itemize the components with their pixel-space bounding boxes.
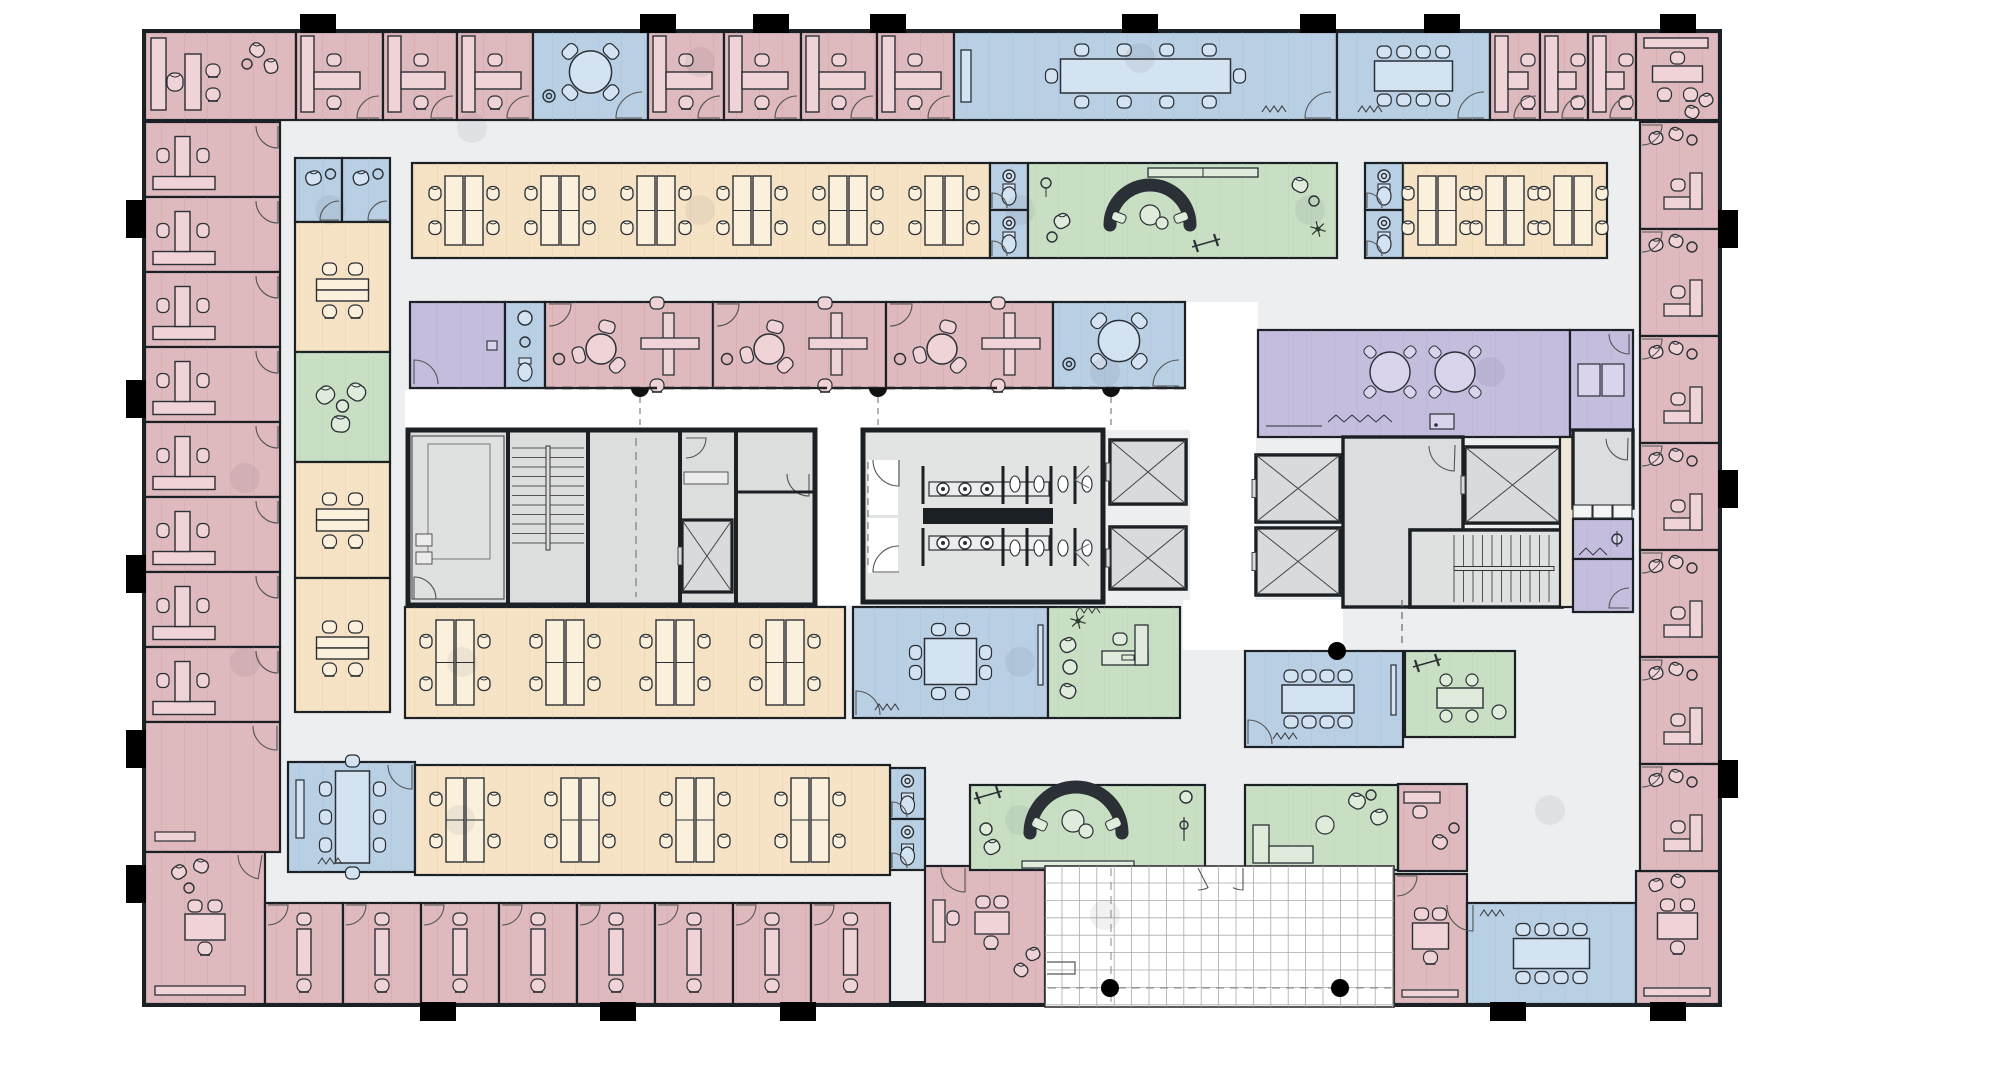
- restrooms: [863, 430, 1103, 602]
- office-s-7: [733, 903, 811, 1004]
- elevator-3: [1252, 455, 1340, 522]
- office-w-8: [145, 647, 280, 722]
- office-n-9: [1540, 32, 1588, 120]
- office-e-6: [1640, 657, 1719, 764]
- dining-room: [1405, 651, 1515, 737]
- elevator-2: [1106, 527, 1186, 589]
- office-s-5: [577, 903, 655, 1004]
- wc-n-3: [1365, 163, 1403, 210]
- lounge-se: [1245, 785, 1398, 870]
- open-office-s: [415, 765, 890, 875]
- office-w-4: [145, 347, 280, 422]
- office-n-1: [296, 32, 383, 120]
- core-west: [408, 430, 815, 605]
- office-n-2: [383, 32, 457, 120]
- office-w-7: [145, 572, 280, 647]
- corner-office-se: [1636, 871, 1719, 1004]
- floor-plan: [0, 0, 2002, 1069]
- collab-cafe: [1258, 330, 1570, 437]
- office-w-9: [145, 722, 280, 852]
- office-w-2: [145, 197, 280, 272]
- store-e-2: [1573, 559, 1633, 612]
- phone-booth-2: [342, 158, 390, 222]
- wc-n-4: [1365, 210, 1403, 258]
- meeting-room-sw: [288, 755, 415, 879]
- open-office-ne: [1402, 163, 1608, 258]
- office-s-2: [343, 903, 421, 1004]
- lounge-nook: [295, 352, 390, 462]
- office-s-4: [499, 903, 577, 1004]
- meeting-office-1: [545, 297, 713, 392]
- office-e-1: [1640, 122, 1719, 229]
- office-w-6: [145, 497, 280, 572]
- shelves-east: [1573, 505, 1632, 518]
- office-s-table: [1394, 874, 1467, 1004]
- office-w-1: [145, 122, 280, 197]
- office-n-10: [1588, 32, 1636, 120]
- office-s-1: [265, 903, 343, 1004]
- office-n-6: [801, 32, 877, 120]
- copy-room: [410, 302, 505, 388]
- wc-s-2: [890, 819, 925, 870]
- office-e-2: [1640, 229, 1719, 336]
- corner-office-ne: [1636, 32, 1719, 120]
- office-n-4: [648, 32, 724, 120]
- office-n-5: [724, 32, 801, 120]
- office-s-3: [421, 903, 499, 1004]
- office-lounge-e: [1398, 784, 1467, 871]
- team-table-3: [295, 578, 390, 712]
- storage-room: [1570, 330, 1633, 430]
- terrace: [1045, 866, 1394, 1007]
- floor-plan-svg: [0, 0, 2002, 1069]
- meeting-office-3: [886, 297, 1053, 392]
- team-table-1: [295, 222, 390, 352]
- office-s-wide: [925, 866, 1045, 1004]
- huddle-room-n: [533, 32, 648, 120]
- office-w-5: [145, 422, 280, 497]
- stair-east: [1410, 530, 1562, 607]
- office-e-3: [1640, 336, 1719, 443]
- meeting-office-2: [713, 297, 886, 392]
- team-table-2: [295, 462, 390, 578]
- office-e-5: [1640, 550, 1719, 657]
- corner-office-nw: [145, 32, 296, 120]
- janitor: [1573, 519, 1633, 559]
- office-e-4: [1640, 443, 1719, 550]
- elevator-1: [1106, 440, 1186, 504]
- store-e-1: [1573, 430, 1633, 508]
- corner-office-sw: [145, 852, 265, 1004]
- conference-room-e: [1245, 651, 1403, 747]
- conference-room-n2: [1337, 32, 1490, 120]
- elevator-5: [1461, 447, 1560, 523]
- office-e-7: [1640, 764, 1719, 871]
- wc-mid: [505, 302, 545, 388]
- conference-room-s: [1447, 903, 1636, 1004]
- elevator-4: [1252, 528, 1340, 595]
- office-n-7: [877, 32, 954, 120]
- lounge-n: [1028, 163, 1337, 258]
- office-s-8: [811, 903, 890, 1004]
- office-n-3: [457, 32, 533, 120]
- office-s-6: [655, 903, 733, 1004]
- manager-office: [1048, 607, 1180, 718]
- office-n-8: [1490, 32, 1540, 120]
- office-w-3: [145, 272, 280, 347]
- wellness-lounge: [970, 785, 1205, 870]
- wc-s-1: [890, 768, 925, 819]
